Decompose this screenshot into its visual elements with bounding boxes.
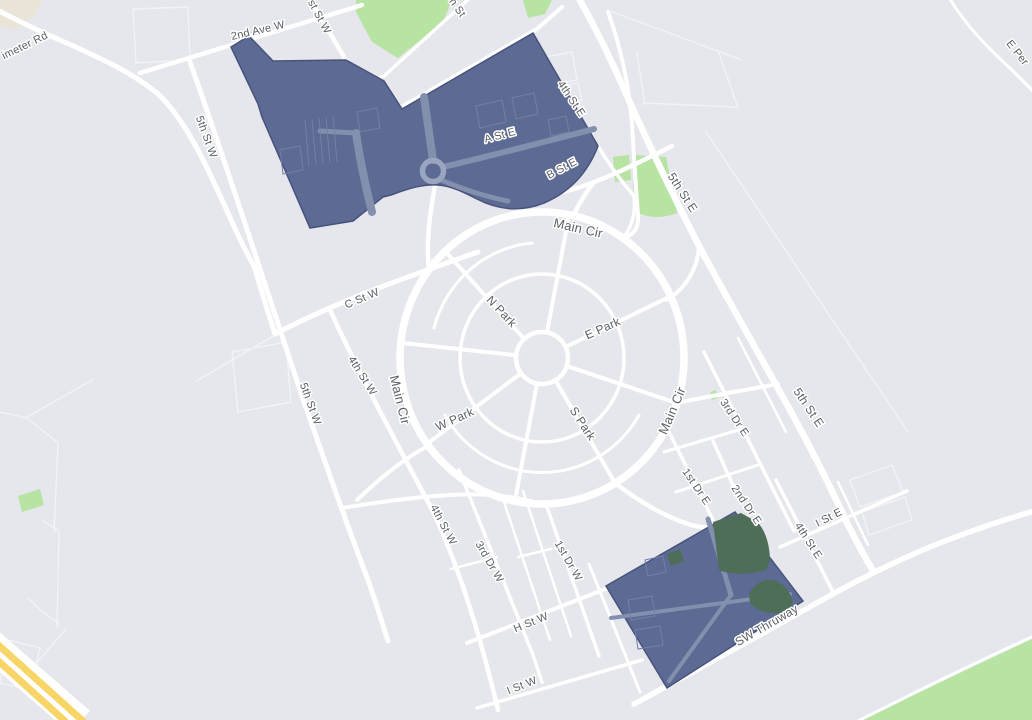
- map-viewport: imeter Rd2nd Ave Wst St Wh St4th St EA S…: [0, 0, 1032, 720]
- map-canvas[interactable]: imeter Rd2nd Ave Wst St Wh St4th St EA S…: [0, 0, 1032, 720]
